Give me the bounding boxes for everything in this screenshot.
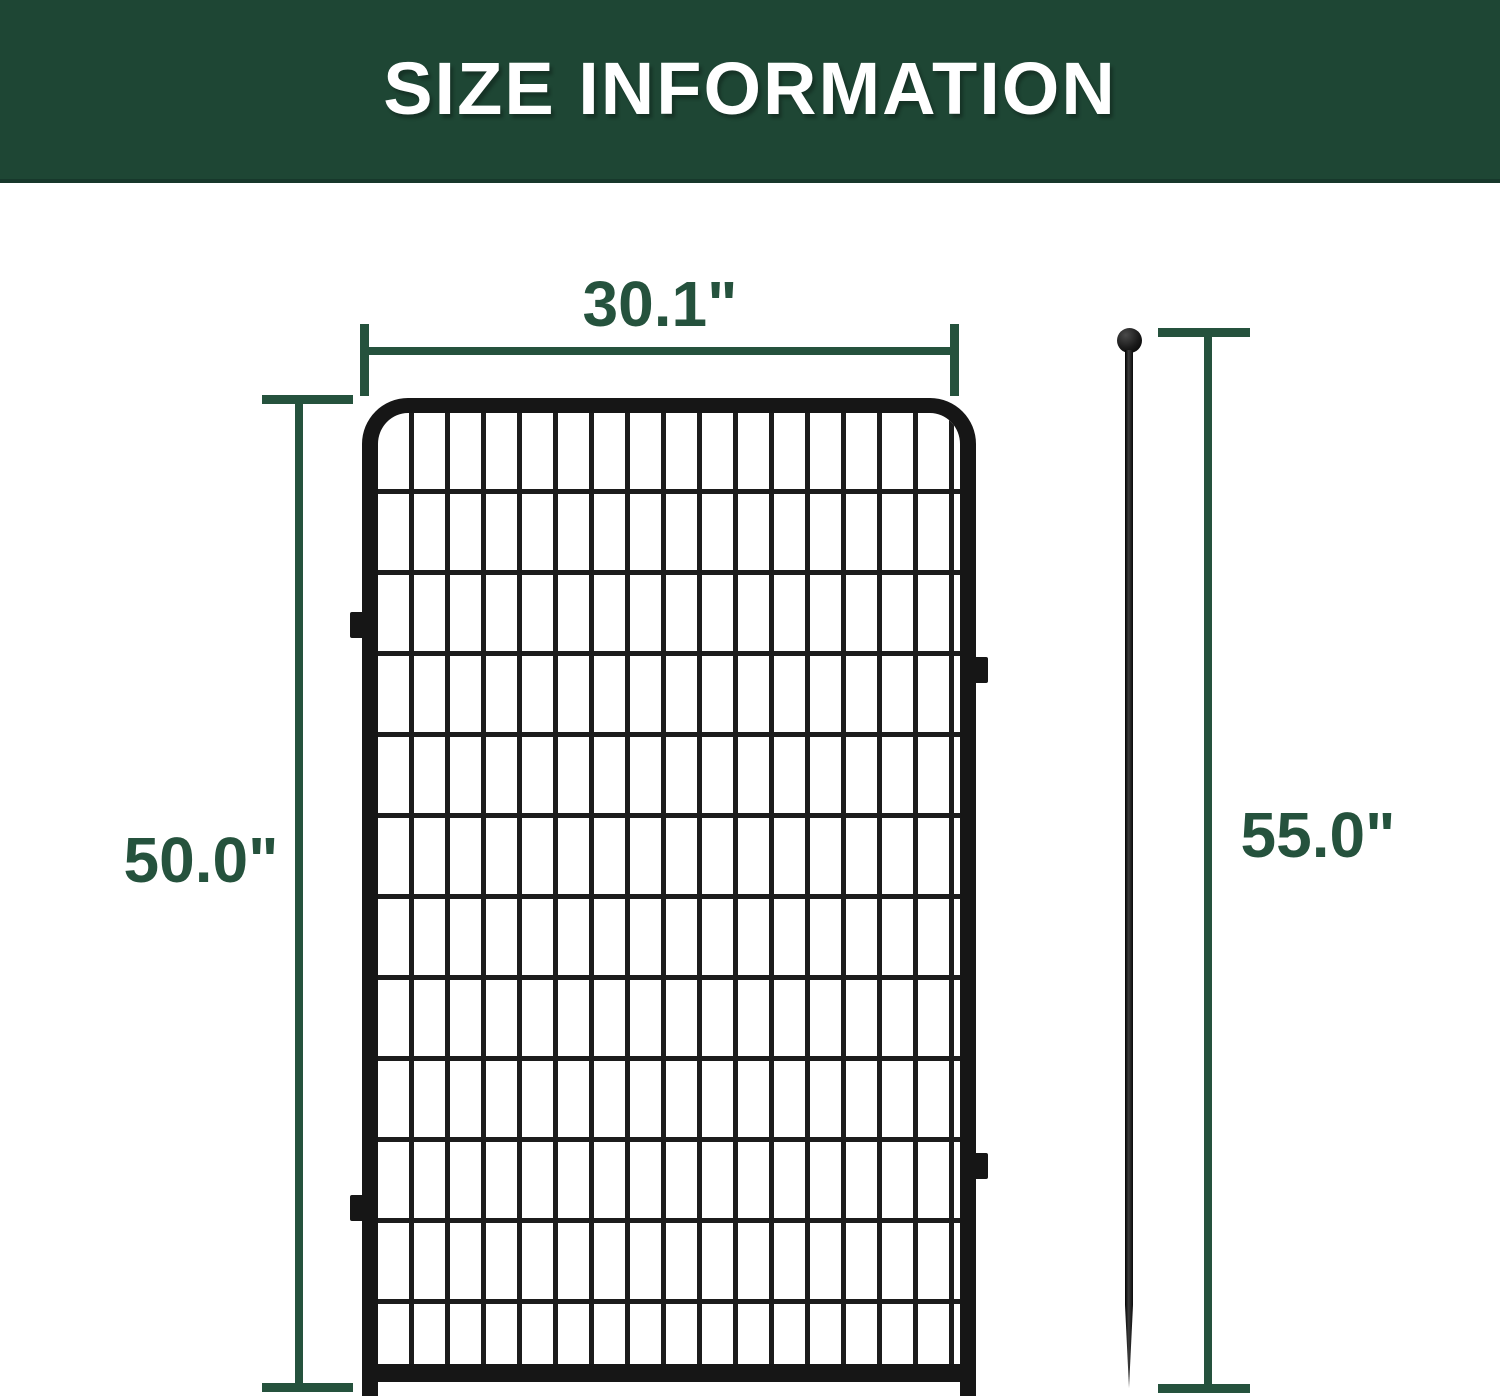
- stake-dimension-line: [1204, 330, 1212, 1391]
- stake-dimension-cap-top: [1158, 328, 1250, 337]
- fence-panel-grid: [378, 413, 960, 1364]
- size-information-figure: SIZE INFORMATION 30.1" 50.0" 55.0": [0, 0, 1500, 1398]
- width-dimension-tick-right: [950, 324, 959, 396]
- fence-panel-leg-left: [362, 1380, 378, 1396]
- header-banner: SIZE INFORMATION: [0, 0, 1500, 183]
- ground-stake-rod: [1125, 350, 1133, 1388]
- stake-height-label: 55.0": [1203, 803, 1433, 867]
- panel-height-label: 50.0": [86, 828, 316, 892]
- fence-clip-right-bottom: [974, 1153, 988, 1179]
- fence-clip-right-top: [974, 657, 988, 683]
- fence-panel-frame: [362, 398, 976, 1382]
- height-dimension-cap-top: [262, 395, 353, 404]
- height-dimension-cap-bottom: [262, 1383, 353, 1392]
- ground-stake-ball: [1117, 328, 1142, 353]
- width-dimension-line: [362, 347, 958, 355]
- page-title: SIZE INFORMATION: [0, 46, 1500, 131]
- panel-width-label: 30.1": [362, 272, 958, 336]
- stake-dimension-cap-bottom: [1158, 1384, 1250, 1393]
- fence-clip-left-top: [350, 612, 364, 638]
- height-dimension-line: [295, 397, 303, 1391]
- fence-panel-leg-right: [960, 1380, 976, 1396]
- fence-clip-left-bottom: [350, 1195, 364, 1221]
- width-dimension-tick-left: [360, 324, 369, 396]
